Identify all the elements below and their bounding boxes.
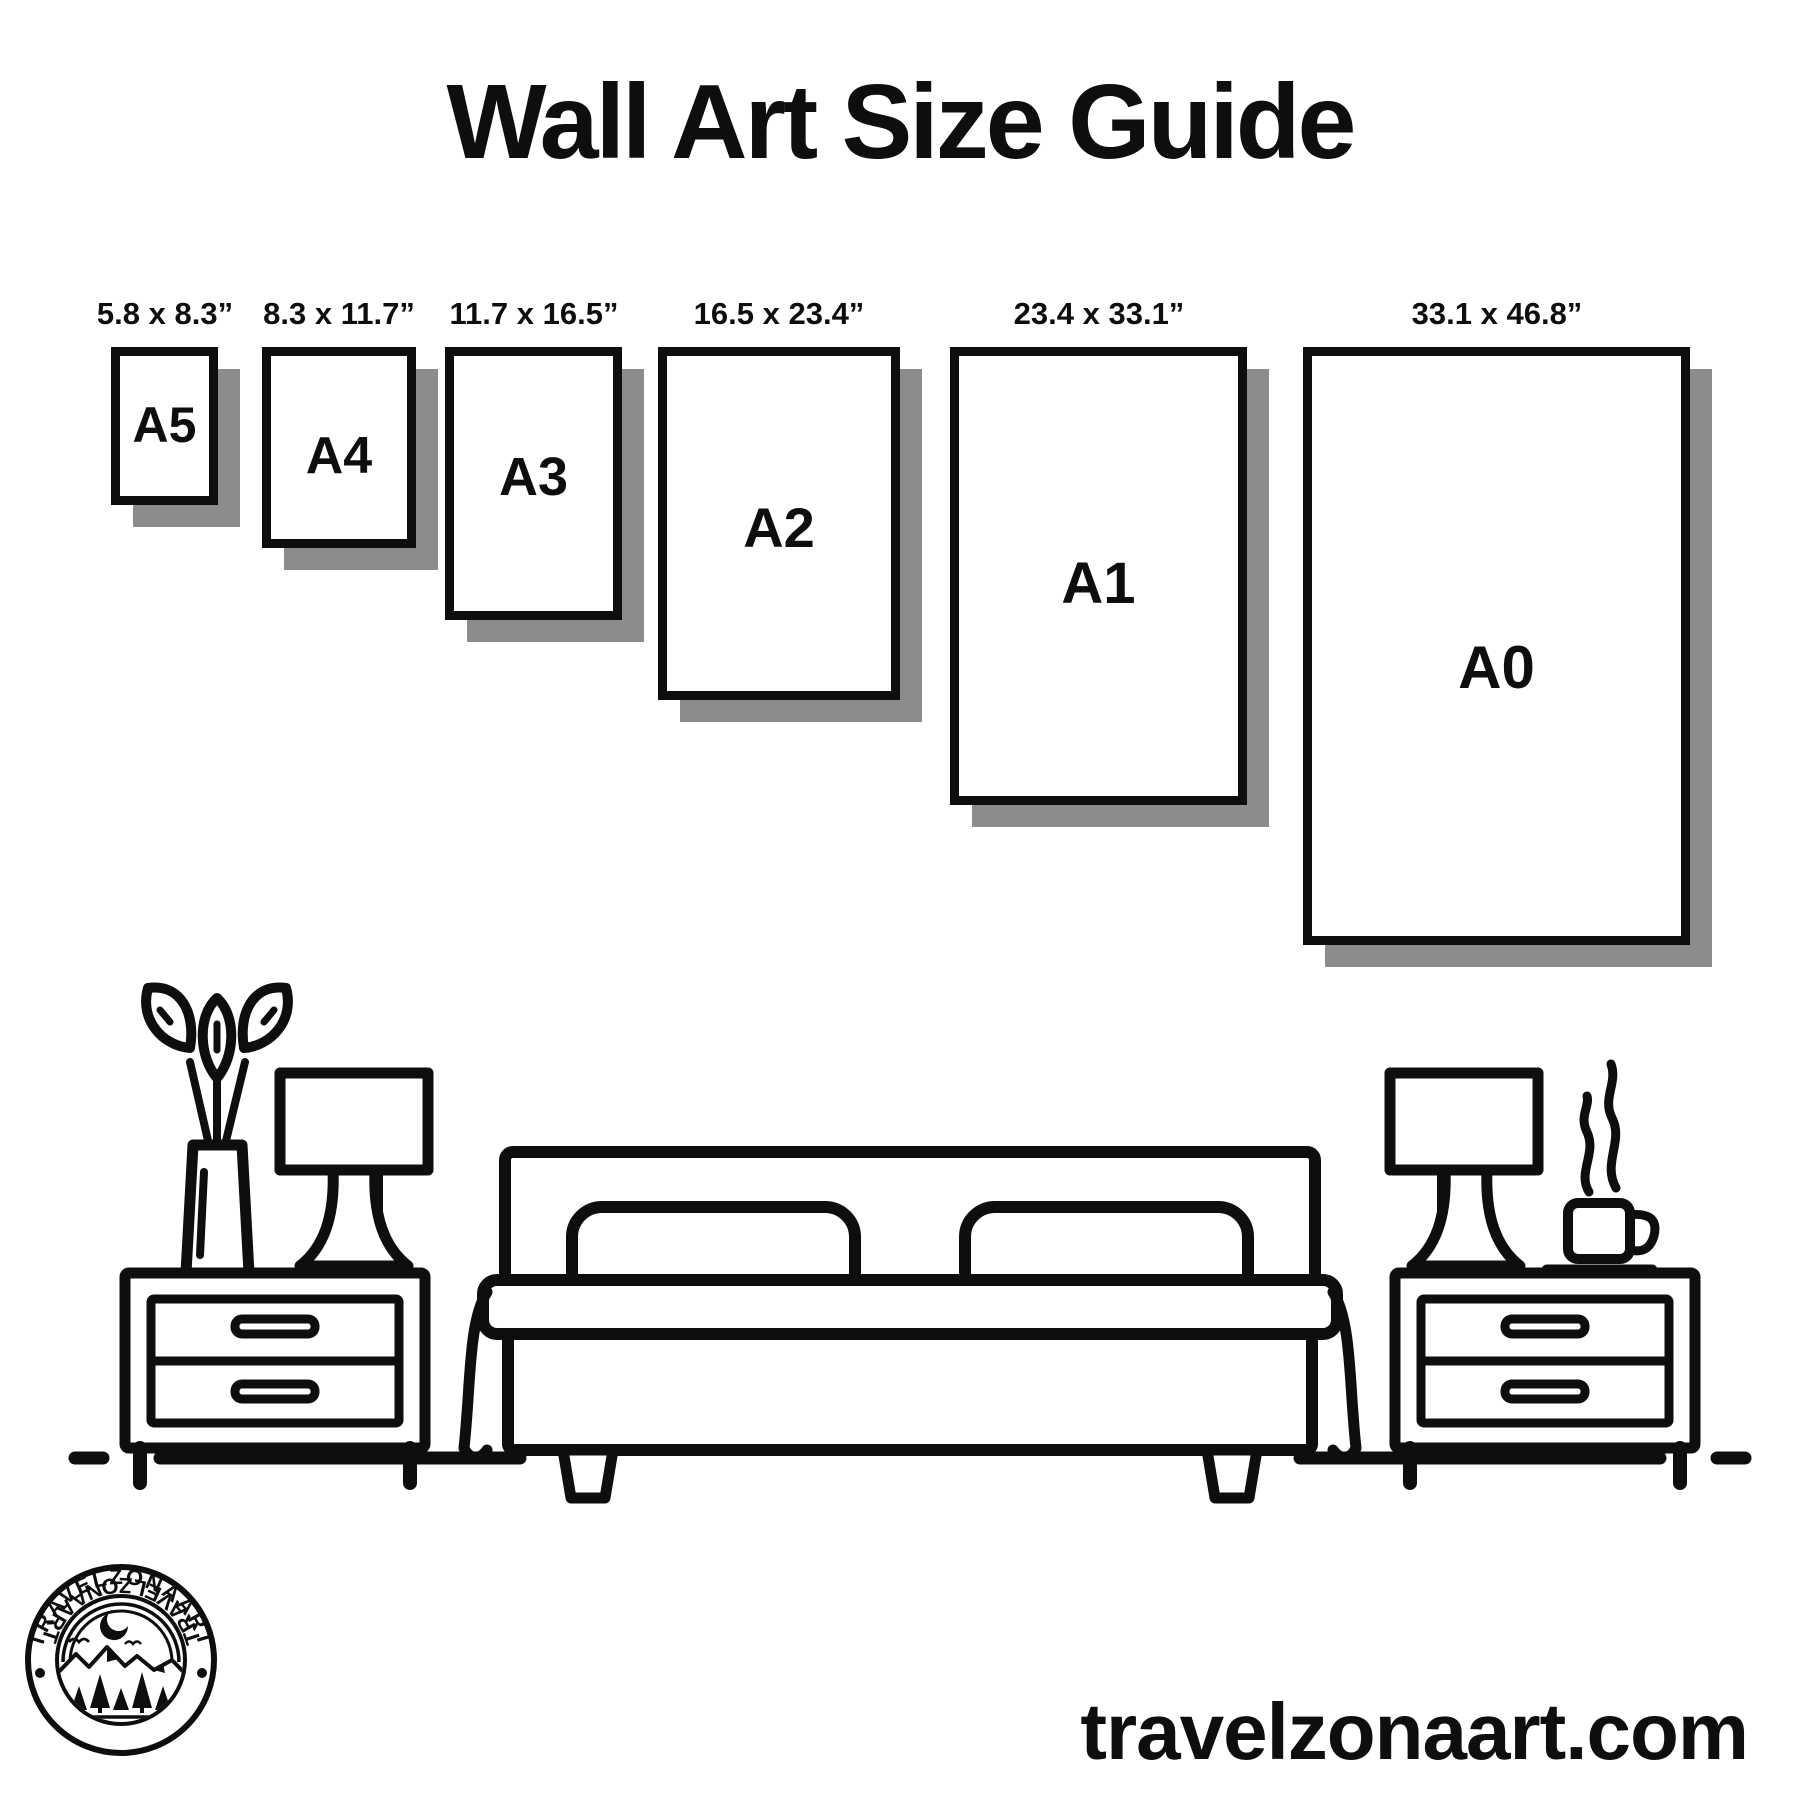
- bed-icon: [464, 1152, 1356, 1498]
- drawer-handle: [235, 1384, 315, 1399]
- bed-leg-right: [1207, 1450, 1257, 1498]
- bird-icon: [125, 1642, 141, 1645]
- dimension-label-a1: 23.4 x 33.1”: [949, 296, 1249, 332]
- size-label-a4: A4: [271, 426, 407, 486]
- coffee-cup-icon: [1547, 1064, 1655, 1270]
- nightstand-right-icon: [1395, 1273, 1695, 1483]
- bed-base: [508, 1334, 1312, 1450]
- size-frame-a5: A5: [111, 347, 218, 505]
- lamp-shade: [1390, 1073, 1538, 1170]
- size-frame-a1: A1: [950, 347, 1247, 805]
- logo-landscape: [49, 1604, 193, 1738]
- drawer-handle: [1505, 1319, 1585, 1334]
- water-lines: [59, 1717, 179, 1738]
- bird-icon: [69, 1639, 89, 1642]
- size-frame-a2: A2: [658, 347, 900, 700]
- moon-icon: [100, 1613, 128, 1640]
- dimension-label-a2: 16.5 x 23.4”: [629, 296, 929, 332]
- logo-dot: [197, 1668, 207, 1678]
- bed-mattress: [483, 1280, 1337, 1334]
- logo-dot: [35, 1668, 45, 1678]
- plant-vase: [186, 1145, 249, 1273]
- lamp-base: [1412, 1170, 1520, 1266]
- lamp-shade: [280, 1073, 428, 1170]
- lamp-base: [300, 1170, 408, 1266]
- size-label-a5: A5: [120, 396, 209, 454]
- plant-icon: [146, 987, 288, 1273]
- nightstand-left-icon: [125, 1273, 425, 1483]
- size-label-a1: A1: [959, 550, 1238, 617]
- cup-body: [1568, 1203, 1630, 1259]
- website-url: travelzonaart.com: [1080, 1686, 1748, 1778]
- dimension-label-a0: 33.1 x 46.8”: [1347, 296, 1647, 332]
- size-label-a0: A0: [1312, 633, 1681, 702]
- table-lamp-right-icon: [1390, 1073, 1538, 1266]
- drawer-handle: [235, 1319, 315, 1334]
- size-frame-a3: A3: [445, 347, 622, 620]
- size-label-a2: A2: [667, 495, 891, 560]
- steam: [1584, 1096, 1590, 1192]
- page-title: Wall Art Size Guide: [0, 62, 1800, 183]
- drawer-handle: [1505, 1384, 1585, 1399]
- size-label-a3: A3: [454, 446, 613, 508]
- table-lamp-left-icon: [280, 1073, 428, 1266]
- bedroom-scene: [0, 840, 1800, 1540]
- steam: [1609, 1064, 1616, 1188]
- bed-leg-left: [563, 1450, 613, 1498]
- brand-logo: TRAVELZONAART TRAVELZONAART: [21, 1560, 221, 1760]
- size-frame-a4: A4: [262, 347, 416, 548]
